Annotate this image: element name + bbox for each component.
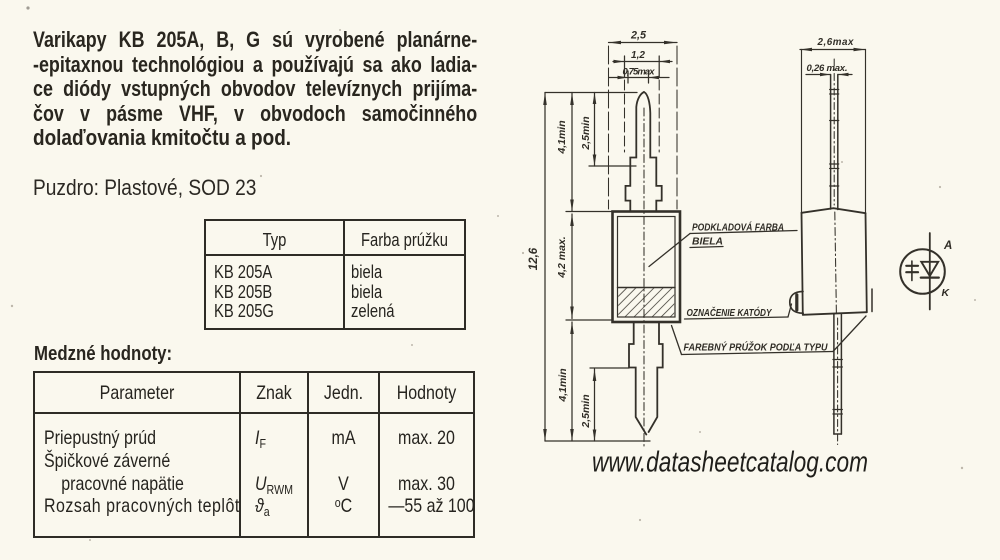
- svg-text:OZNAČENIE KATÓDY: OZNAČENIE KATÓDY: [687, 306, 773, 319]
- svg-text:2,5min: 2,5min: [580, 394, 592, 428]
- svg-text:BIELA: BIELA: [692, 237, 723, 248]
- svg-text:1,2: 1,2: [631, 50, 645, 61]
- svg-text:2,6max: 2,6max: [817, 37, 855, 48]
- svg-text:12,6: 12,6: [528, 247, 540, 270]
- svg-text:4,1min: 4,1min: [556, 120, 568, 154]
- svg-text:A: A: [943, 240, 952, 252]
- svg-text:4,1min: 4,1min: [557, 368, 569, 402]
- svg-text:FAREBNÝ PRÚŽOK PODĽA TYPU: FAREBNÝ PRÚŽOK PODĽA TYPU: [684, 341, 829, 354]
- svg-text:2,5min: 2,5min: [580, 116, 592, 150]
- svg-text:PODKLADOVÁ FARBA: PODKLADOVÁ FARBA: [692, 221, 784, 234]
- svg-text:2,5: 2,5: [630, 30, 647, 42]
- svg-text:K: K: [942, 287, 951, 299]
- svg-text:www.datasheetcatalog.com: www.datasheetcatalog.com: [592, 447, 868, 479]
- svg-text:0,75max: 0,75max: [623, 67, 656, 78]
- svg-text:4,2 max.: 4,2 max.: [556, 236, 568, 279]
- svg-text:0,26 max.: 0,26 max.: [807, 63, 848, 74]
